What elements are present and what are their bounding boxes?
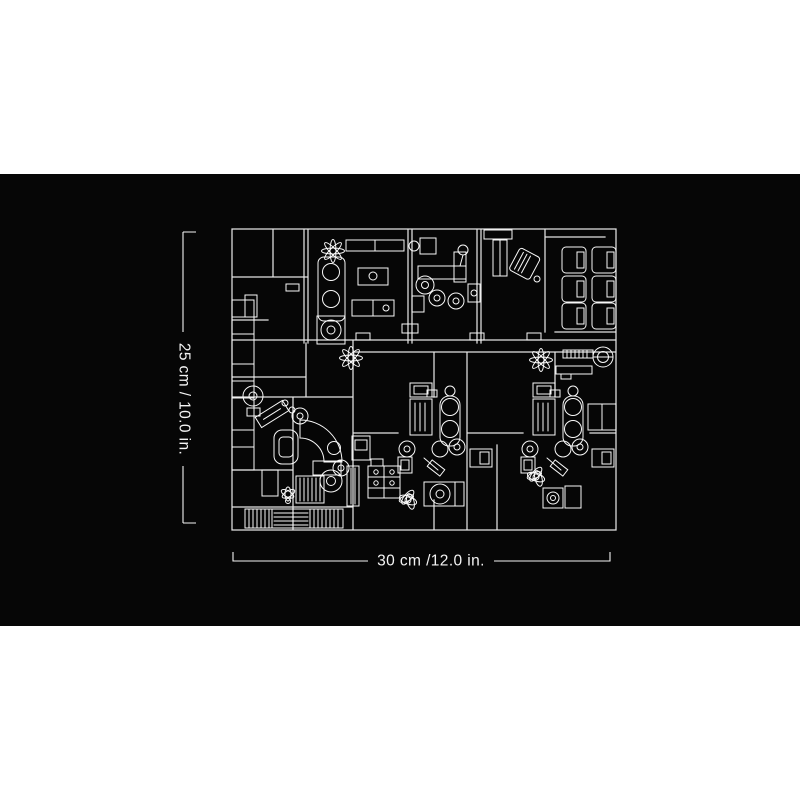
page: 25 cm / 10.0 in. 30 cm /12.0 in. xyxy=(0,0,800,800)
floor-plan-figure: 25 cm / 10.0 in. 30 cm /12.0 in. xyxy=(0,0,800,800)
width-dimension-label: 30 cm /12.0 in. xyxy=(377,553,485,570)
height-dimension-label: 25 cm / 10.0 in. xyxy=(176,343,193,455)
